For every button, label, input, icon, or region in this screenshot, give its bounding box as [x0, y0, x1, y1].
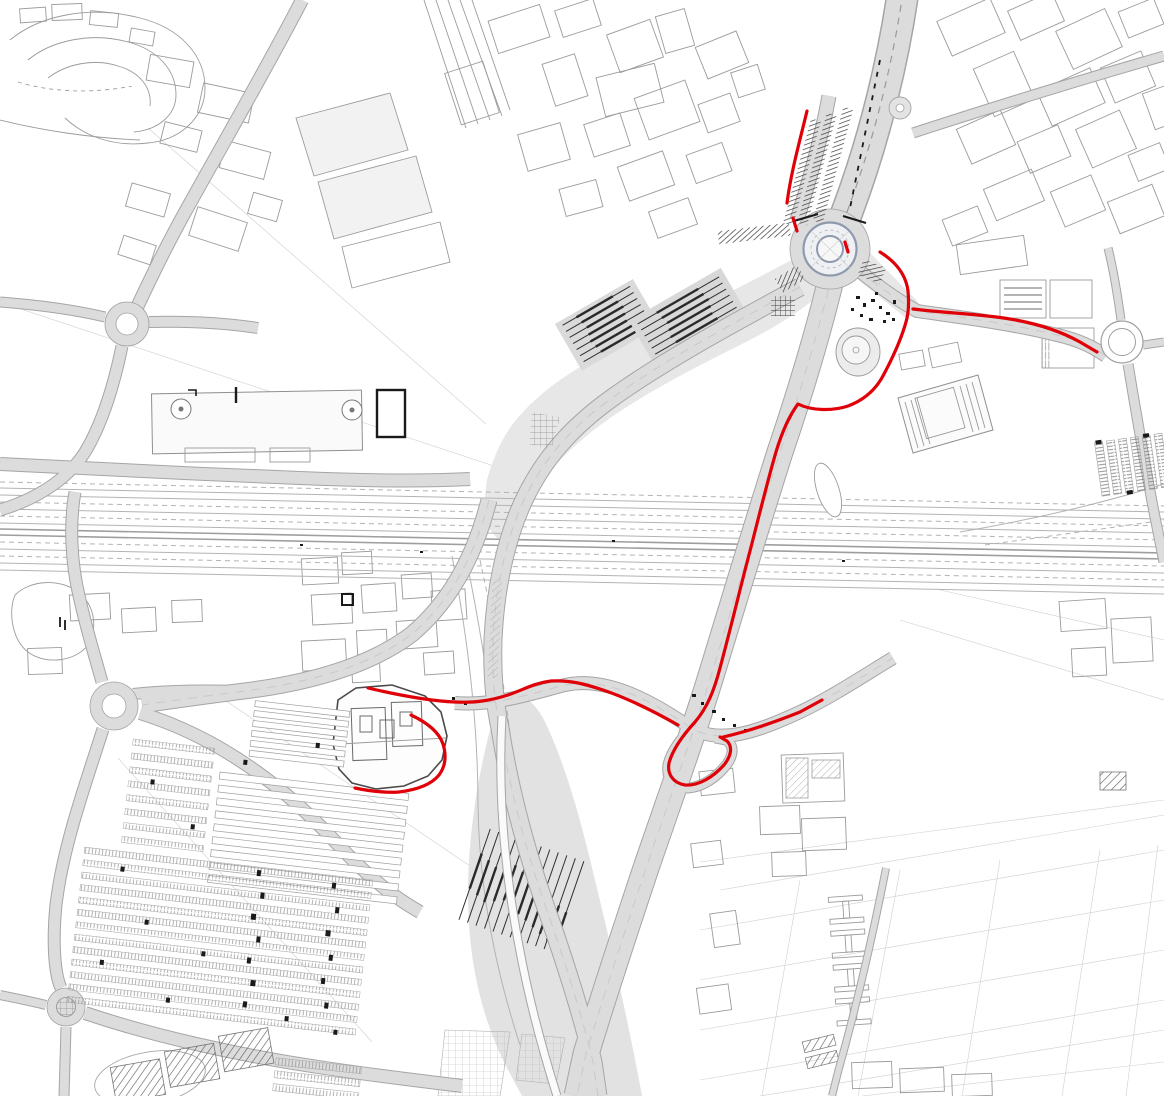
west-roundabout — [105, 302, 149, 346]
site-plan-map[interactable] — [0, 0, 1164, 1096]
southwest-roundabout — [90, 682, 138, 730]
east-roundabout — [1101, 321, 1143, 363]
site-plan-canvas — [0, 0, 1164, 1096]
boulevard-junction-loop — [889, 97, 911, 119]
bottom-left-roundabout — [47, 988, 85, 1026]
